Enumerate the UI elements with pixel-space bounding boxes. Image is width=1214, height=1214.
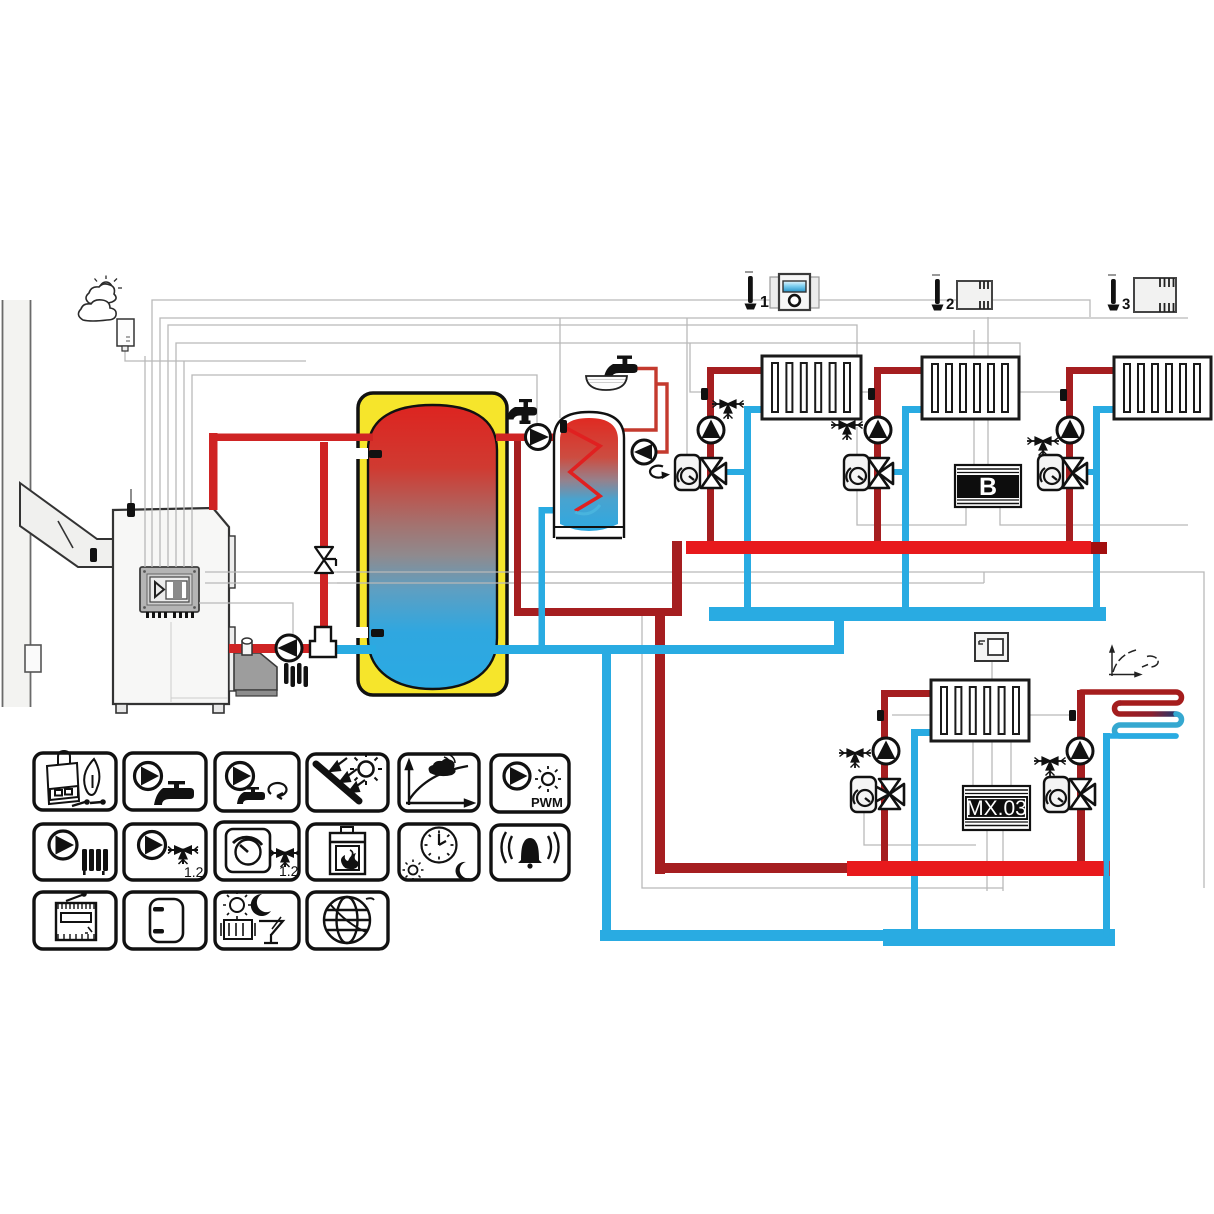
svg-text:3: 3 [1122,296,1130,313]
svg-text:MX.03: MX.03 [966,797,1027,820]
svg-text:1.2: 1.2 [184,864,204,880]
svg-text:2: 2 [946,296,954,313]
svg-text:B: B [979,473,997,501]
svg-text:1.2: 1.2 [279,863,299,879]
svg-text:PWM: PWM [531,795,563,810]
svg-text:1: 1 [760,294,769,311]
